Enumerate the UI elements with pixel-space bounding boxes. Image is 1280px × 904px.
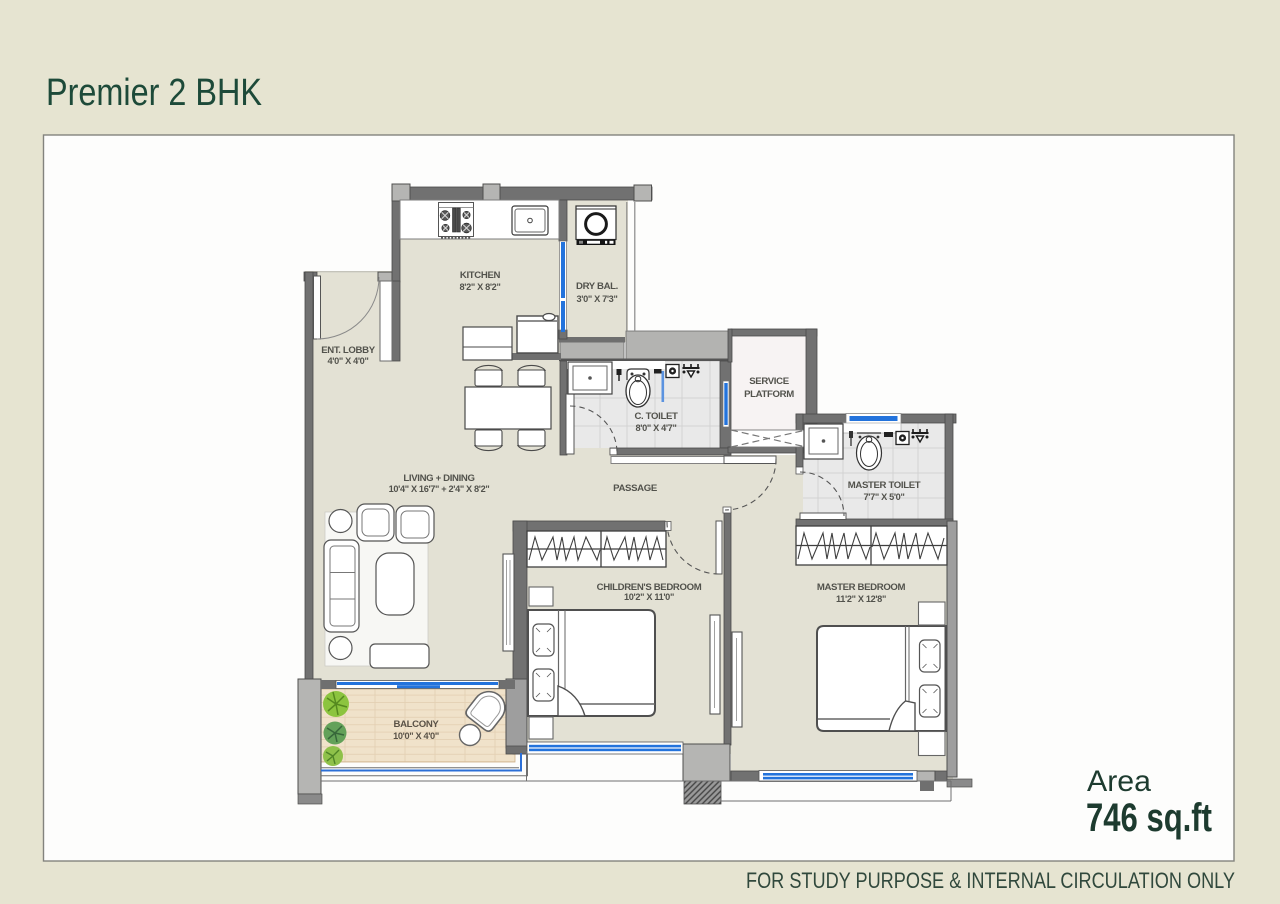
svg-text:C. TOILET: C. TOILET — [634, 411, 678, 422]
svg-text:3'0" X 7'3": 3'0" X 7'3" — [577, 294, 618, 304]
svg-text:4'0" X 4'0": 4'0" X 4'0" — [328, 356, 369, 366]
svg-text:7'7" X 5'0": 7'7" X 5'0" — [864, 492, 905, 502]
svg-text:DRY BAL.: DRY BAL. — [576, 281, 618, 292]
svg-text:PLATFORM: PLATFORM — [744, 389, 794, 400]
svg-text:PASSAGE: PASSAGE — [613, 483, 658, 494]
svg-text:BALCONY: BALCONY — [394, 719, 440, 730]
svg-text:746 sq.ft: 746 sq.ft — [1086, 796, 1212, 840]
svg-text:10'4" X 16'7" + 2'4" X 8'2": 10'4" X 16'7" + 2'4" X 8'2" — [389, 484, 490, 494]
svg-text:10'0" X 4'0": 10'0" X 4'0" — [393, 731, 439, 741]
svg-text:10'2" X 11'0": 10'2" X 11'0" — [624, 592, 674, 602]
svg-text:MASTER TOILET: MASTER TOILET — [848, 480, 921, 491]
svg-text:8'0" X 4'7": 8'0" X 4'7" — [636, 423, 677, 433]
svg-text:KITCHEN: KITCHEN — [460, 270, 501, 281]
svg-text:Premier 2 BHK: Premier 2 BHK — [46, 72, 262, 114]
svg-text:LIVING + DINING: LIVING + DINING — [403, 473, 474, 484]
svg-text:Area: Area — [1087, 765, 1151, 798]
svg-text:SERVICE: SERVICE — [749, 376, 789, 387]
svg-text:FOR STUDY PURPOSE & INTERNAL C: FOR STUDY PURPOSE & INTERNAL CIRCULATION… — [746, 868, 1235, 893]
svg-text:11'2" X 12'8": 11'2" X 12'8" — [836, 594, 886, 604]
svg-text:ENT. LOBBY: ENT. LOBBY — [321, 345, 375, 356]
svg-text:MASTER BEDROOM: MASTER BEDROOM — [817, 582, 906, 593]
svg-text:8'2" X 8'2": 8'2" X 8'2" — [460, 282, 501, 292]
